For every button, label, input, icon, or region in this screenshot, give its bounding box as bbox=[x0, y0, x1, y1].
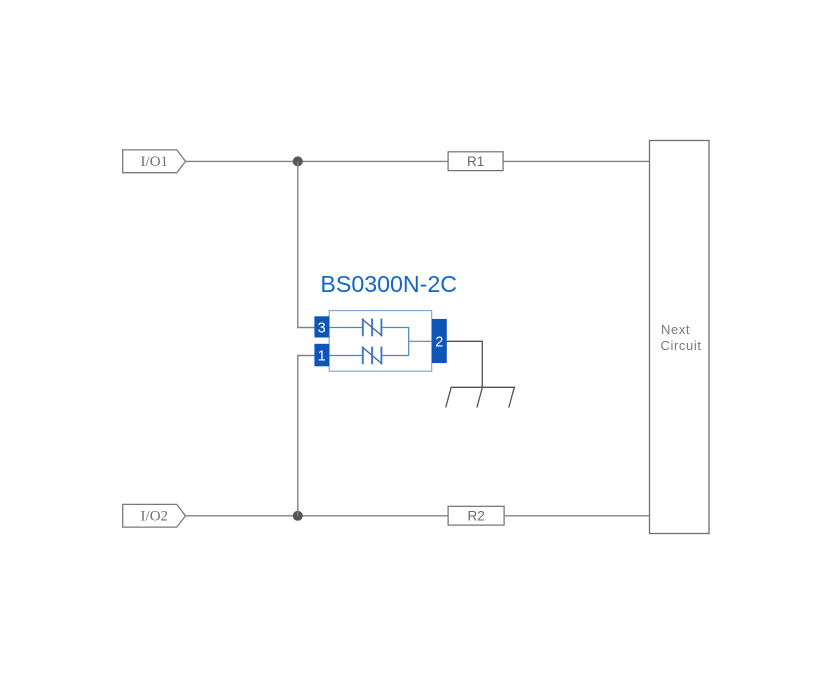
svg-text:R2: R2 bbox=[467, 509, 484, 524]
svg-text:BS0300N-2C: BS0300N-2C bbox=[320, 271, 457, 297]
svg-text:Next: Next bbox=[661, 322, 690, 337]
svg-text:Circuit: Circuit bbox=[661, 338, 702, 353]
svg-text:1: 1 bbox=[318, 348, 326, 364]
svg-text:R1: R1 bbox=[467, 154, 484, 169]
svg-text:2: 2 bbox=[435, 334, 443, 350]
svg-text:I/O2: I/O2 bbox=[141, 508, 169, 524]
svg-text:3: 3 bbox=[318, 320, 326, 336]
svg-text:I/O1: I/O1 bbox=[141, 154, 169, 170]
